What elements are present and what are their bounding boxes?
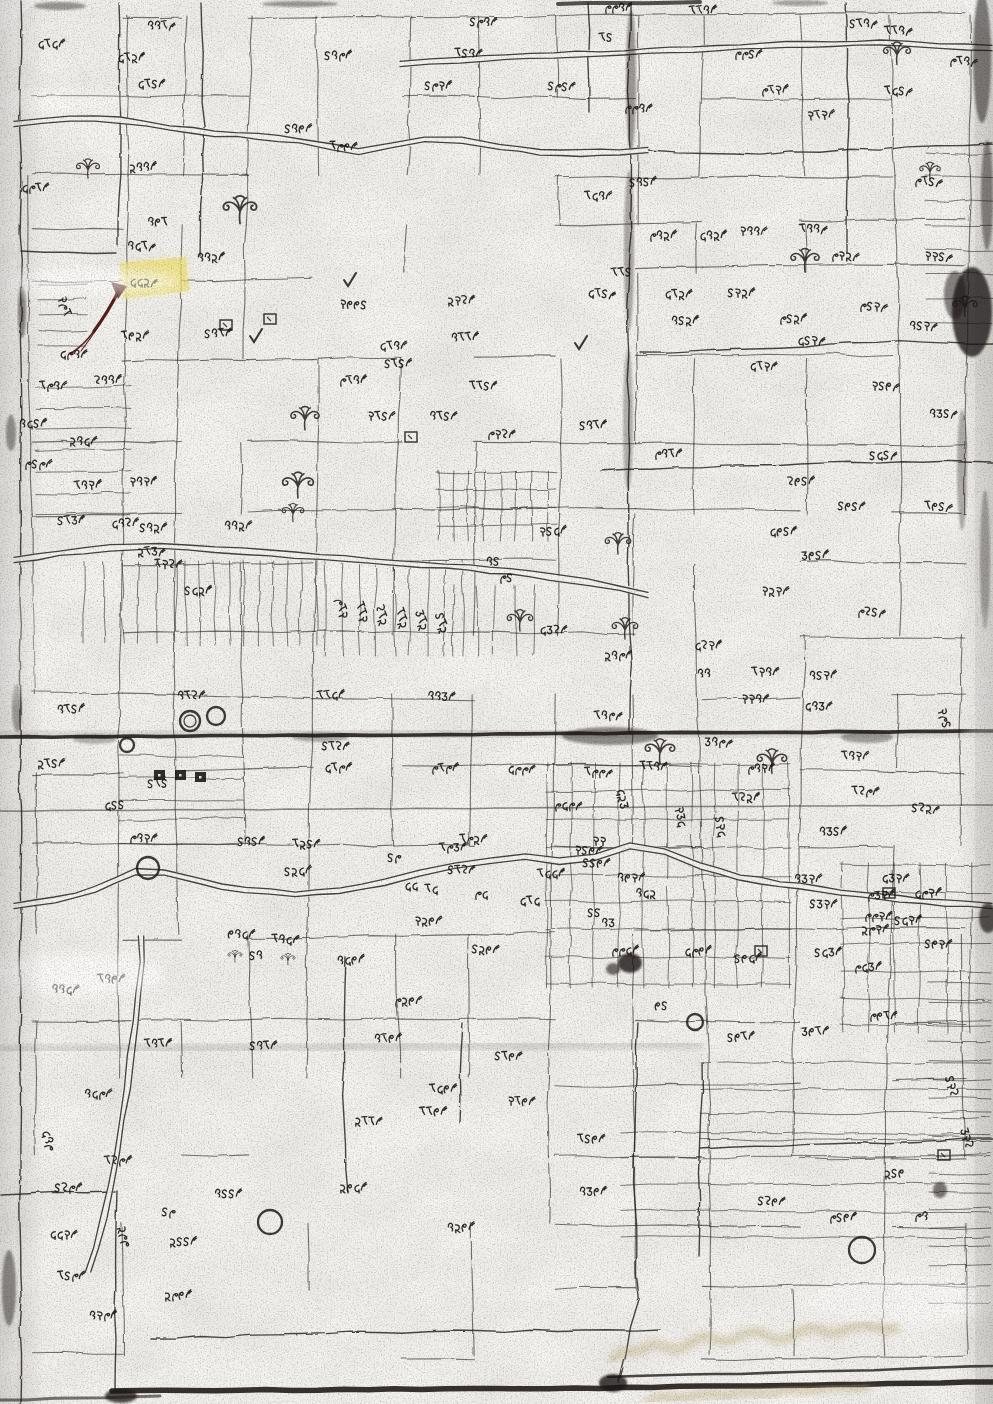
noise-overlay [0,0,993,1404]
scanned-map-page: Scanned photocopy of a hand-inked cadast… [0,0,993,1404]
cadastral-map-canvas [0,0,993,1404]
